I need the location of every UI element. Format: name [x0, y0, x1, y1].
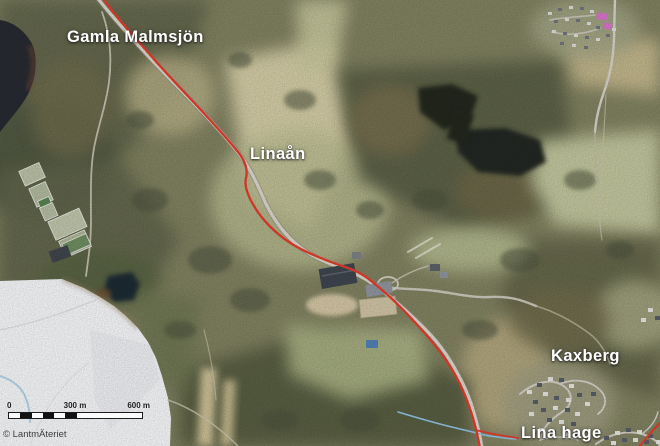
scale-mid-label: 300 m [64, 401, 87, 410]
aerial-map-figure: Gamla Malmsjön Linaån Kaxberg Lina hage … [0, 0, 660, 446]
label-lina-hage: Lina hage [521, 424, 602, 443]
photo-grain [0, 0, 660, 446]
scale-bar-segment [20, 413, 31, 418]
scale-end-label: 600 m [127, 401, 150, 410]
aerial-photo-canvas [0, 0, 660, 446]
scale-bar: 0 300 m 600 m [8, 401, 143, 423]
label-linaan: Linaån [250, 145, 306, 164]
scale-bar-labels: 0 300 m 600 m [8, 401, 143, 412]
scale-bar-segment [65, 413, 76, 418]
label-gamla-malmsjon: Gamla Malmsjön [67, 28, 204, 47]
label-kaxberg: Kaxberg [551, 347, 620, 366]
scale-zero-label: 0 [7, 401, 11, 410]
scale-bar-ruler [8, 412, 143, 419]
scale-bar-segment [43, 413, 54, 418]
copyright-attribution: © LantmÄteriet [3, 429, 67, 440]
